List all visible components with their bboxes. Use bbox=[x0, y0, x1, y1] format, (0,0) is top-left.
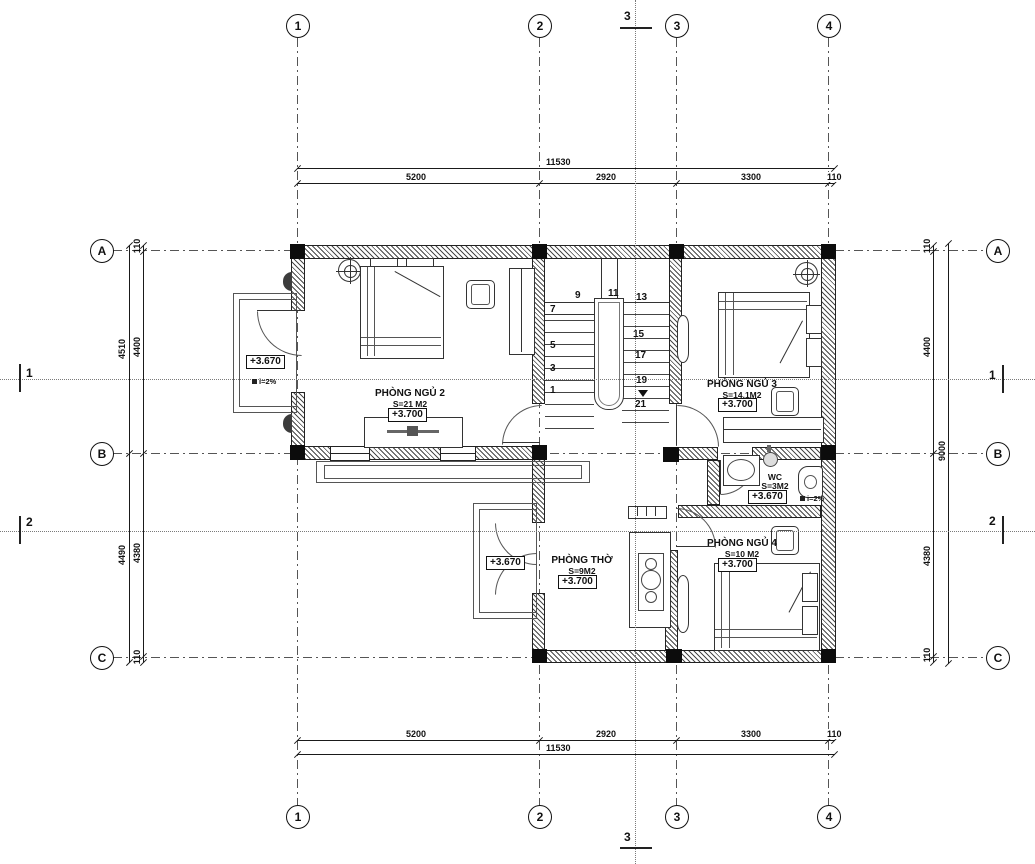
level-tag-balcony-left: +3.670 bbox=[246, 355, 285, 369]
section-marker-1-right-line bbox=[1002, 365, 1004, 393]
section-marker-1-left-line bbox=[19, 364, 21, 392]
pilaster-bump-lower bbox=[283, 414, 292, 433]
incense-bowl-small bbox=[645, 558, 657, 570]
room-name-bedroom3: PHÒNG NGỦ 3 bbox=[682, 379, 802, 390]
dim-top-seg3: 3300 bbox=[740, 172, 762, 182]
stair-direction-arrow bbox=[638, 390, 648, 397]
slope-label-wc: i=2% bbox=[800, 494, 824, 503]
desk-shelf-line bbox=[724, 429, 821, 430]
level-tag-bedroom3: +3.700 bbox=[718, 398, 757, 412]
dim-tick bbox=[831, 165, 838, 172]
pillow bbox=[806, 305, 822, 334]
grid-bubble-col3-top: 3 bbox=[665, 14, 689, 38]
stair-number: 3 bbox=[550, 363, 556, 374]
column-4C bbox=[821, 649, 836, 663]
slope-label-balcony-left: i=2% bbox=[252, 377, 276, 386]
door-arc-bedroom3 bbox=[677, 405, 719, 447]
stair-newel-rail-inner bbox=[598, 302, 620, 406]
dim-bottom-seg1: 5200 bbox=[405, 729, 427, 739]
room-name-bedroom4: PHÒNG NGỦ 4 bbox=[682, 538, 802, 549]
incense-bowl-large bbox=[641, 570, 661, 590]
dim-top-total: 11530 bbox=[545, 157, 572, 167]
section-marker-2-right-label: 2 bbox=[989, 514, 996, 528]
stair-number: 19 bbox=[636, 375, 647, 386]
section-line-1 bbox=[0, 379, 1035, 380]
dim-tick bbox=[831, 751, 838, 758]
dim-right-inner1: 110 bbox=[922, 225, 932, 267]
grid-bubble-col2-bottom: 2 bbox=[528, 805, 552, 829]
bed-stripe-h bbox=[719, 301, 807, 310]
dim-top-seg2: 2920 bbox=[595, 172, 617, 182]
dim-left-inner2: 4400 bbox=[132, 326, 142, 368]
stair-treads-right-flight bbox=[622, 314, 669, 432]
level-tag-worship: +3.700 bbox=[558, 575, 597, 589]
grid-bubble-col2-top: 2 bbox=[528, 14, 552, 38]
grid-bubble-rowC-left: C bbox=[90, 646, 114, 670]
ceiling-fan-icon bbox=[338, 259, 361, 282]
column-3B bbox=[663, 447, 679, 462]
section-marker-3-top-label: 3 bbox=[624, 9, 631, 23]
blanket-fold-line bbox=[395, 271, 441, 297]
stair-number: 13 bbox=[636, 292, 647, 303]
window-glass-line bbox=[331, 453, 369, 454]
fan-hub bbox=[344, 265, 357, 278]
dim-bottom-seg4: 110 bbox=[826, 729, 843, 739]
section-marker-3-top-line bbox=[620, 27, 652, 29]
shower-head-icon bbox=[763, 452, 778, 467]
grid-bubble-col1-bottom: 1 bbox=[286, 805, 310, 829]
wardrobe-bedroom2 bbox=[509, 268, 535, 355]
section-marker-1-left-label: 1 bbox=[26, 366, 33, 380]
stair-number: 17 bbox=[635, 350, 646, 361]
dim-right-inner3: 4380 bbox=[922, 535, 932, 577]
stair-number: 5 bbox=[550, 340, 556, 351]
level-tag-bedroom4: +3.700 bbox=[718, 558, 757, 572]
grid-bubble-col3-bottom: 3 bbox=[665, 805, 689, 829]
dim-right-inner2: 4400 bbox=[922, 326, 932, 368]
grid-bubble-rowB-left: B bbox=[90, 442, 114, 466]
dim-tick bbox=[945, 660, 952, 667]
section-marker-1-right-label: 1 bbox=[989, 368, 996, 382]
dim-left-outer2: 4490 bbox=[117, 534, 127, 576]
wall-wc-left bbox=[707, 460, 720, 505]
stair-newel-rail bbox=[594, 298, 624, 410]
shelf-worship bbox=[628, 506, 667, 519]
dim-line-bottom-segments bbox=[297, 740, 835, 741]
column-4B bbox=[821, 445, 836, 460]
floor-plan-canvas: 1 2 3 4 1 2 3 4 A B C A B C 3 3 1 2 1 2 … bbox=[0, 0, 1035, 864]
door-arc-bedroom2 bbox=[502, 405, 542, 445]
grid-bubble-col1-top: 1 bbox=[286, 14, 310, 38]
column-1A bbox=[290, 244, 305, 259]
wall-exterior-bottom bbox=[532, 650, 836, 663]
dim-line-right-outer bbox=[948, 243, 949, 664]
grid-line-row-b bbox=[113, 453, 987, 454]
shower-arm bbox=[767, 445, 771, 452]
bed-stripe-h bbox=[361, 337, 441, 346]
section-line-3 bbox=[635, 0, 636, 864]
grid-bubble-rowC-right: C bbox=[986, 646, 1010, 670]
pillow bbox=[802, 606, 818, 635]
dim-bottom-seg2: 2920 bbox=[595, 729, 617, 739]
dim-left-inner4: 110 bbox=[132, 636, 142, 678]
grid-bubble-col4-top: 4 bbox=[817, 14, 841, 38]
dim-top-seg1: 5200 bbox=[405, 172, 427, 182]
dim-left-inner3: 4380 bbox=[132, 532, 142, 574]
column-2B bbox=[532, 445, 547, 460]
window-glass-line bbox=[441, 453, 475, 454]
column-4A bbox=[821, 244, 836, 259]
grid-bubble-rowB-right: B bbox=[986, 442, 1010, 466]
column-3A bbox=[669, 244, 684, 259]
louvre-wardrobe-bedroom4 bbox=[677, 575, 689, 633]
desk-bedroom3 bbox=[723, 417, 824, 443]
stair-number: 21 bbox=[635, 399, 646, 410]
stair-rail-line-1 bbox=[601, 258, 602, 302]
chair-bedroom2 bbox=[466, 280, 495, 309]
wardrobe-divider bbox=[521, 269, 522, 352]
window-bedroom2-2 bbox=[440, 446, 476, 461]
dim-right-inner4: 110 bbox=[922, 634, 932, 676]
column-1B bbox=[290, 445, 305, 460]
dim-left-outer1: 4510 bbox=[117, 328, 127, 370]
level-tag-balcony-worship: +3.670 bbox=[486, 556, 525, 570]
grid-bubble-col4-bottom: 4 bbox=[817, 805, 841, 829]
dim-line-top-segments bbox=[297, 183, 835, 184]
level-tag-bedroom2: +3.700 bbox=[388, 408, 427, 422]
section-marker-3-bottom-label: 3 bbox=[624, 830, 631, 844]
column-3C bbox=[666, 649, 682, 663]
window-bedroom2-1 bbox=[330, 446, 370, 461]
section-marker-2-left-line bbox=[19, 516, 21, 544]
canopy-outline-inner bbox=[324, 465, 582, 479]
dim-right-total: 9000 bbox=[937, 430, 947, 472]
stair-number: 7 bbox=[550, 304, 556, 315]
section-marker-2-left-label: 2 bbox=[26, 515, 33, 529]
chair-seat bbox=[471, 284, 490, 305]
column-2A bbox=[532, 244, 547, 259]
dim-left-inner1: 110 bbox=[132, 225, 142, 267]
fan-hub bbox=[801, 268, 814, 281]
bed-bedroom2 bbox=[360, 266, 444, 359]
column-2C bbox=[532, 649, 547, 663]
dim-line-bottom-total bbox=[297, 754, 835, 755]
room-name-worship: PHÒNG THỜ bbox=[522, 555, 642, 566]
tv-base bbox=[407, 426, 418, 436]
dim-bottom-seg3: 3300 bbox=[740, 729, 762, 739]
section-marker-2-right-line bbox=[1002, 516, 1004, 544]
ceiling-fan-icon bbox=[795, 262, 818, 285]
level-tag-wc: +3.670 bbox=[748, 490, 787, 504]
grid-bubble-rowA-left: A bbox=[90, 239, 114, 263]
pilaster-bump-upper bbox=[283, 272, 292, 291]
room-name-bedroom2: PHÒNG NGỦ 2 bbox=[350, 388, 470, 399]
wall-exterior-top bbox=[290, 245, 836, 259]
dim-bottom-total: 11530 bbox=[545, 743, 572, 753]
blanket-fold-line bbox=[780, 321, 803, 364]
stair-number: 9 bbox=[575, 290, 581, 301]
stair-number: 11 bbox=[608, 288, 619, 299]
louvre-wardrobe-bedroom3 bbox=[677, 315, 689, 363]
pillow bbox=[802, 573, 818, 602]
section-line-2 bbox=[0, 531, 1035, 532]
stair-number: 1 bbox=[550, 385, 556, 396]
staircase bbox=[545, 258, 669, 446]
pillow bbox=[806, 338, 822, 367]
dim-top-seg4: 110 bbox=[826, 172, 843, 182]
incense-bowl-small bbox=[645, 591, 657, 603]
bed-bedroom3 bbox=[718, 292, 810, 378]
grid-bubble-rowA-right: A bbox=[986, 239, 1010, 263]
section-marker-3-bottom-line bbox=[620, 847, 652, 849]
dim-line-top-total bbox=[297, 168, 835, 169]
